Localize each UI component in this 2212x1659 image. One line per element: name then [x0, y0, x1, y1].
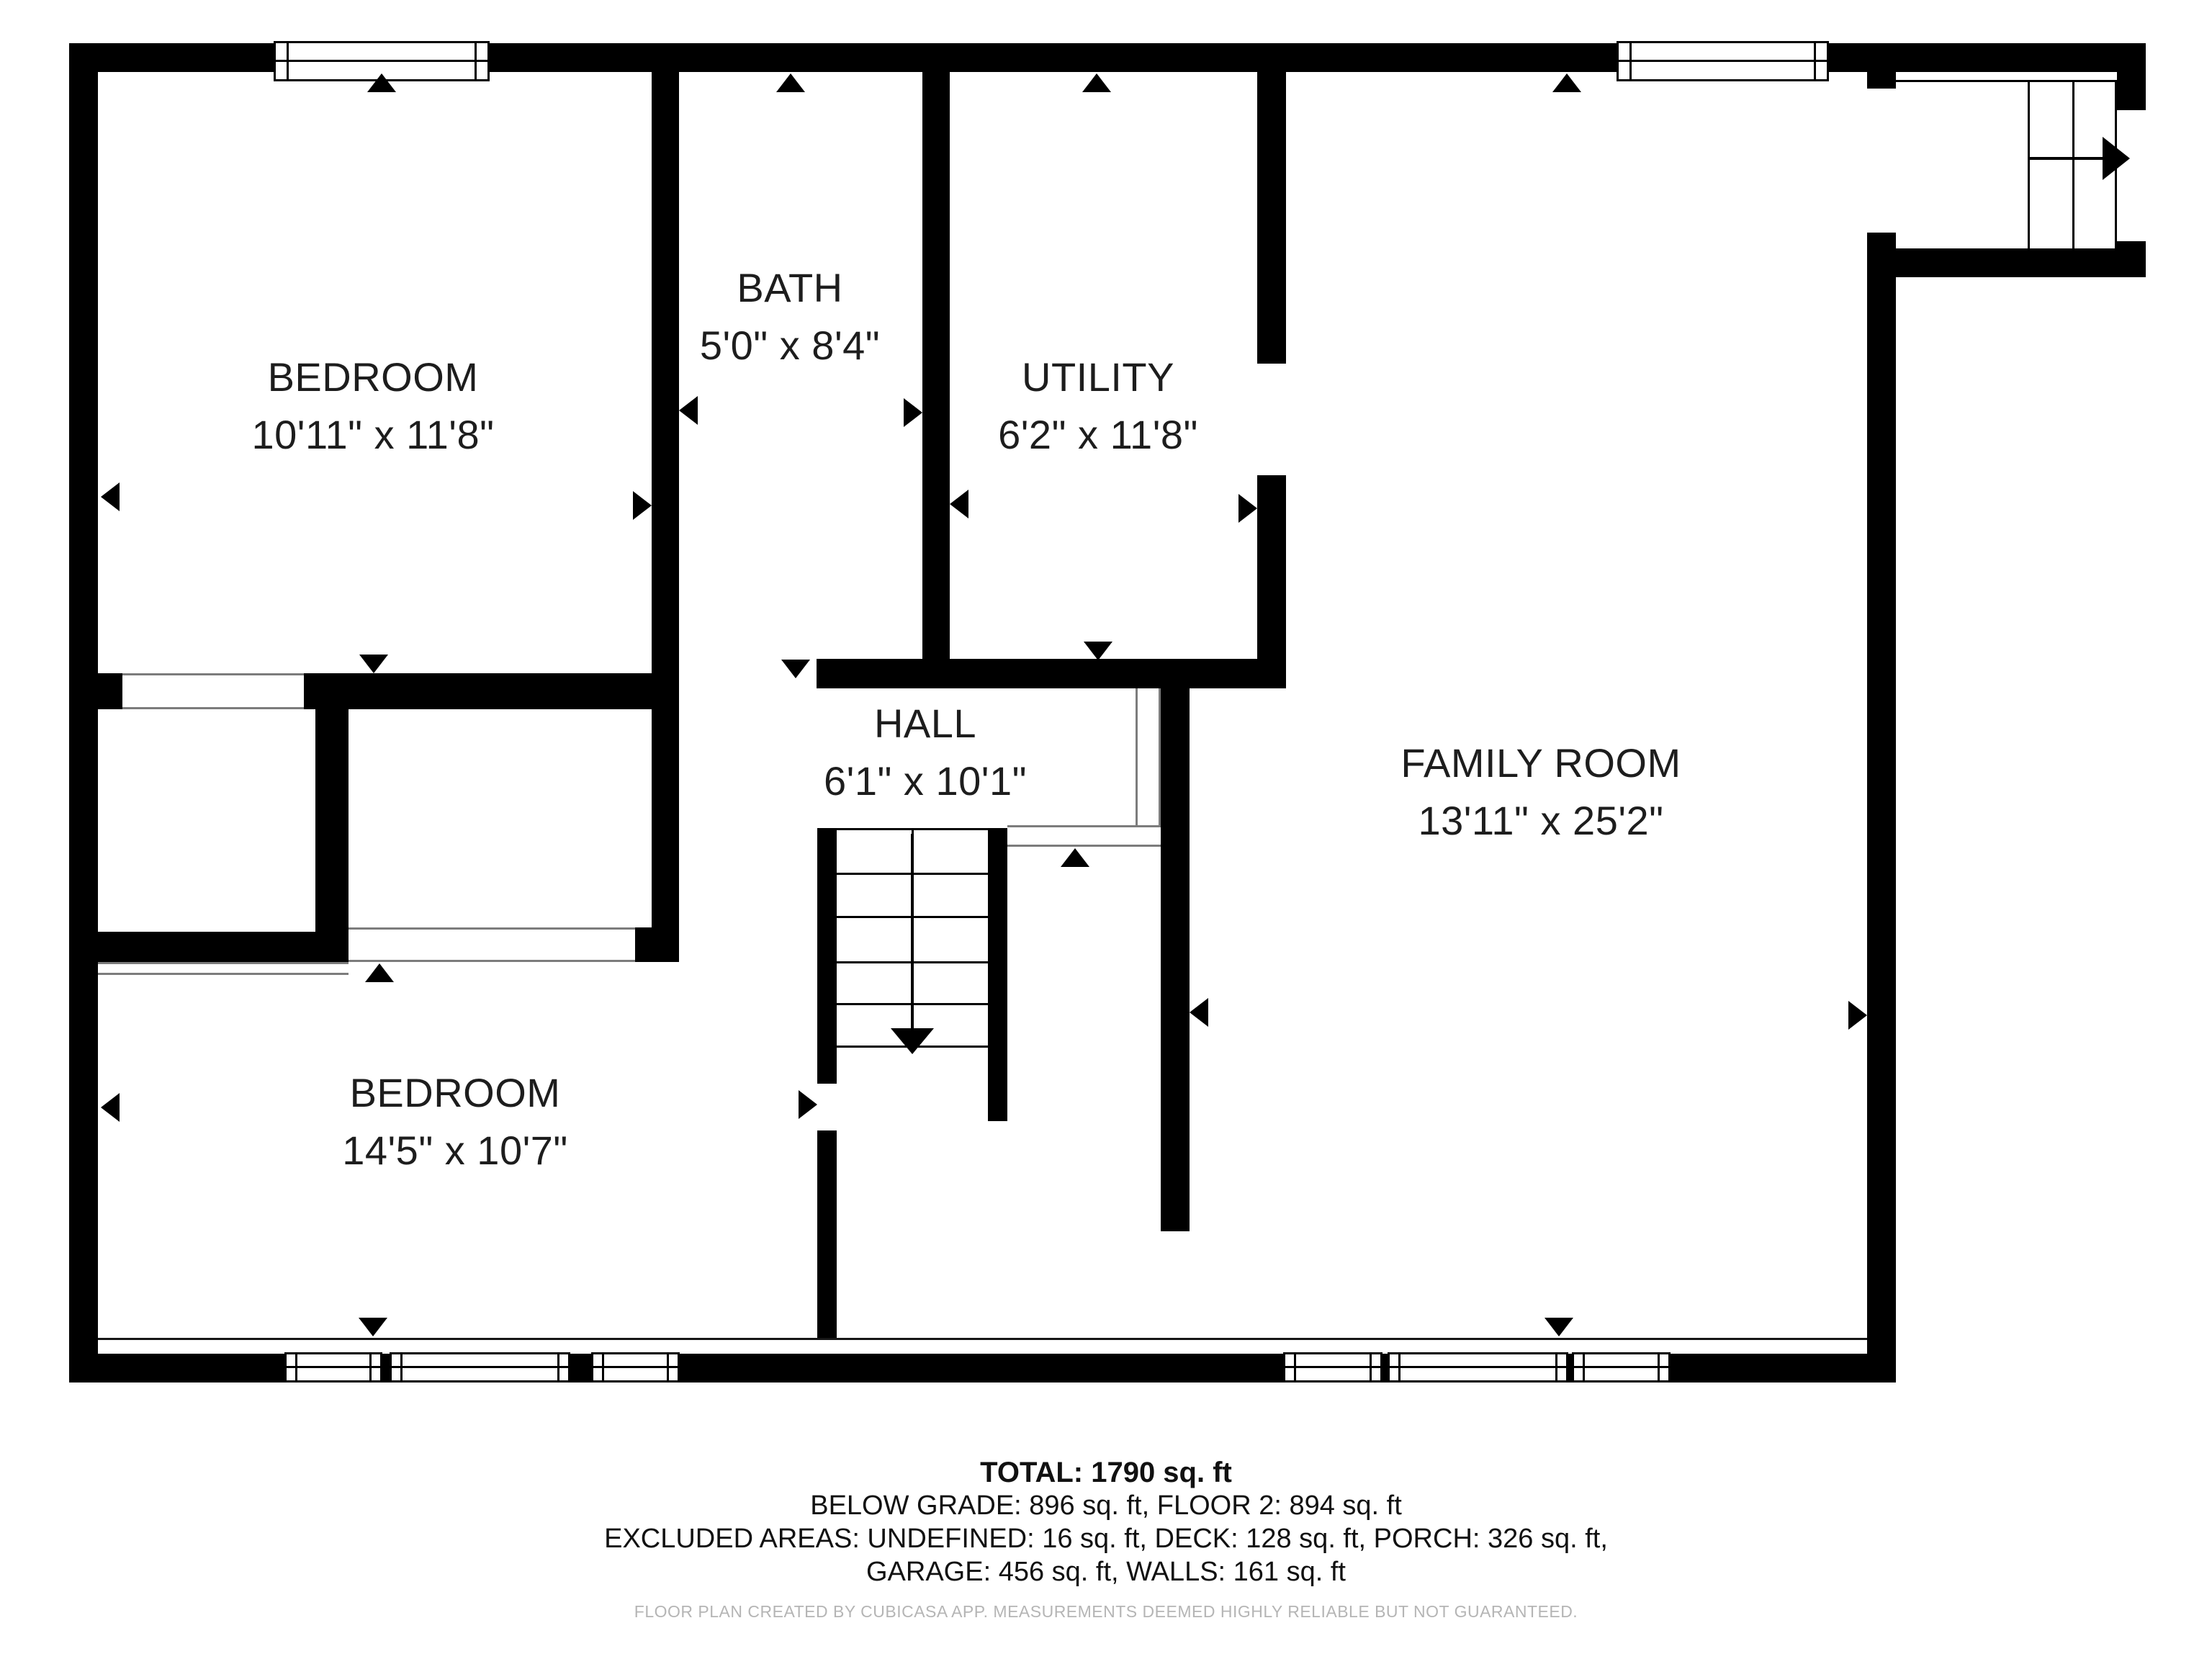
wall-bedroom1-bottom-right: [304, 673, 673, 709]
room-name: FAMILY ROOM: [1401, 734, 1681, 792]
entry-stairs-tread-line: [2028, 80, 2030, 248]
wall-familyroom-right: [1867, 233, 1896, 1382]
floor-plan-page: { "rooms": [ {"name": "BEDROOM", "dims":…: [0, 0, 2212, 1659]
room-label-bedroom1: BEDROOM 10'11" x 11'8": [252, 349, 495, 464]
wall-stairwell-right: [988, 828, 1007, 1121]
window-bedroom2-bottom-2: [390, 1352, 570, 1382]
wall-stairwell-left-lower: [817, 1130, 837, 1354]
entry-stairs-arrow-icon: [2103, 137, 2130, 180]
room-label-bedroom2: BEDROOM 14'5" x 10'7": [342, 1064, 568, 1179]
wall-bedroom1-bottom-left: [98, 673, 122, 709]
window-familyroom-bottom-3: [1572, 1352, 1671, 1382]
wall-bedroom1-bath: [652, 72, 679, 927]
entry-stairs-top-line: [1896, 80, 2117, 82]
floor-plan-canvas: BEDROOM 10'11" x 11'8" BATH 5'0" x 8'4" …: [0, 0, 2212, 1476]
marker-icon-utility-left: [950, 490, 968, 518]
wall-familyroom-right-stub: [1867, 72, 1896, 89]
marker-icon-bedroom1-bottom: [359, 655, 388, 673]
marker-icon-bath-right: [904, 398, 922, 427]
marker-icon-utility-top: [1082, 73, 1111, 92]
marker-icon-familyroom-window: [1545, 1318, 1573, 1336]
room-dims: 10'11" x 11'8": [252, 406, 495, 464]
room-dims: 5'0" x 8'4": [700, 317, 880, 374]
stairs-down-arrow-icon: [891, 1028, 934, 1054]
window-familyroom-top: [1617, 41, 1829, 81]
room-name: BEDROOM: [252, 349, 495, 406]
room-label-familyroom: FAMILY ROOM 13'11" x 25'2": [1401, 734, 1681, 850]
opening-bedroom2-alcove: [349, 927, 635, 962]
room-dims: 6'2" x 11'8": [998, 406, 1198, 464]
opening-hall-familyroom: [1136, 688, 1161, 825]
wall-closet-bottom: [69, 932, 349, 962]
marker-icon-utility-door: [1238, 494, 1257, 523]
wall-exterior-left: [69, 43, 98, 1382]
marker-icon-bath-door: [781, 660, 810, 678]
marker-icon-bath-top: [776, 73, 805, 92]
stairs-down-arrow-shaft: [911, 834, 914, 1028]
opening-bedroom1-closet: [122, 673, 304, 709]
area-summary: TOTAL: 1790 sq. ft BELOW GRADE: 896 sq. …: [0, 1456, 2212, 1622]
wall-bath-utility: [922, 72, 950, 659]
room-dims: 6'1" x 10'1": [824, 752, 1027, 810]
area-line-grades: BELOW GRADE: 896 sq. ft, FLOOR 2: 894 sq…: [0, 1489, 2212, 1522]
entry-stairs-arrow-shaft: [2028, 157, 2104, 160]
marker-icon-bath-left: [679, 396, 698, 425]
wall-hall-top: [817, 659, 1286, 688]
room-dims: 14'5" x 10'7": [342, 1122, 568, 1179]
area-line-garage: GARAGE: 456 sq. ft, WALLS: 161 sq. ft: [0, 1555, 2212, 1588]
room-dims: 13'11" x 25'2": [1401, 792, 1681, 850]
room-name: UTILITY: [998, 349, 1198, 406]
wall-closet-divider: [315, 709, 349, 932]
room-name: BEDROOM: [342, 1064, 568, 1122]
marker-icon-utility-hall: [1084, 642, 1112, 660]
room-label-utility: UTILITY 6'2" x 11'8": [998, 349, 1198, 464]
opening-closet-door: [98, 962, 349, 975]
room-name: HALL: [824, 695, 1027, 752]
wall-utility-right-upper: [1257, 72, 1286, 364]
wall-stairbox-right-upper: [2117, 43, 2146, 110]
wall-hall-familyroom: [1161, 688, 1190, 1231]
marker-icon-bedroom2-window: [359, 1318, 387, 1336]
marker-icon-bedroom1-top: [367, 73, 396, 92]
wall-stairbox-bottom: [1867, 248, 2146, 277]
marker-icon-familyroom-right: [1848, 1001, 1867, 1030]
marker-icon-hall-opening: [1061, 848, 1089, 867]
wall-utility-right-lower: [1257, 475, 1286, 659]
room-label-bath: BATH 5'0" x 8'4": [700, 259, 880, 374]
opening-hall-bottom: [1007, 825, 1161, 847]
marker-icon-familyroom-left: [1190, 998, 1208, 1027]
room-name: BATH: [700, 259, 880, 317]
area-line-excluded: EXCLUDED AREAS: UNDEFINED: 16 sq. ft, DE…: [0, 1522, 2212, 1555]
wall-stairwell-left-upper: [817, 828, 837, 1084]
total-area-text: TOTAL: 1790 sq. ft: [0, 1456, 2212, 1489]
marker-icon-bedroom1-left: [101, 482, 120, 511]
disclaimer-text: FLOOR PLAN CREATED BY CUBICASA APP. MEAS…: [0, 1601, 2212, 1622]
room-label-hall: HALL 6'1" x 10'1": [824, 695, 1027, 810]
marker-icon-familyroom-top: [1552, 73, 1581, 92]
marker-icon-bedroom2-door: [799, 1090, 817, 1119]
window-bedroom2-bottom-3: [591, 1352, 680, 1382]
window-familyroom-bottom-1: [1283, 1352, 1382, 1382]
marker-icon-closet-door: [365, 963, 394, 982]
wall-alcove-end-block: [635, 927, 679, 962]
marker-icon-bedroom1-right: [633, 491, 652, 520]
window-bedroom2-bottom-1: [284, 1352, 382, 1382]
bottom-sill-line: [98, 1338, 1867, 1354]
window-familyroom-bottom-2: [1388, 1352, 1568, 1382]
entry-stairs-tread-line: [2072, 80, 2074, 248]
marker-icon-bedroom2-left: [101, 1093, 120, 1122]
